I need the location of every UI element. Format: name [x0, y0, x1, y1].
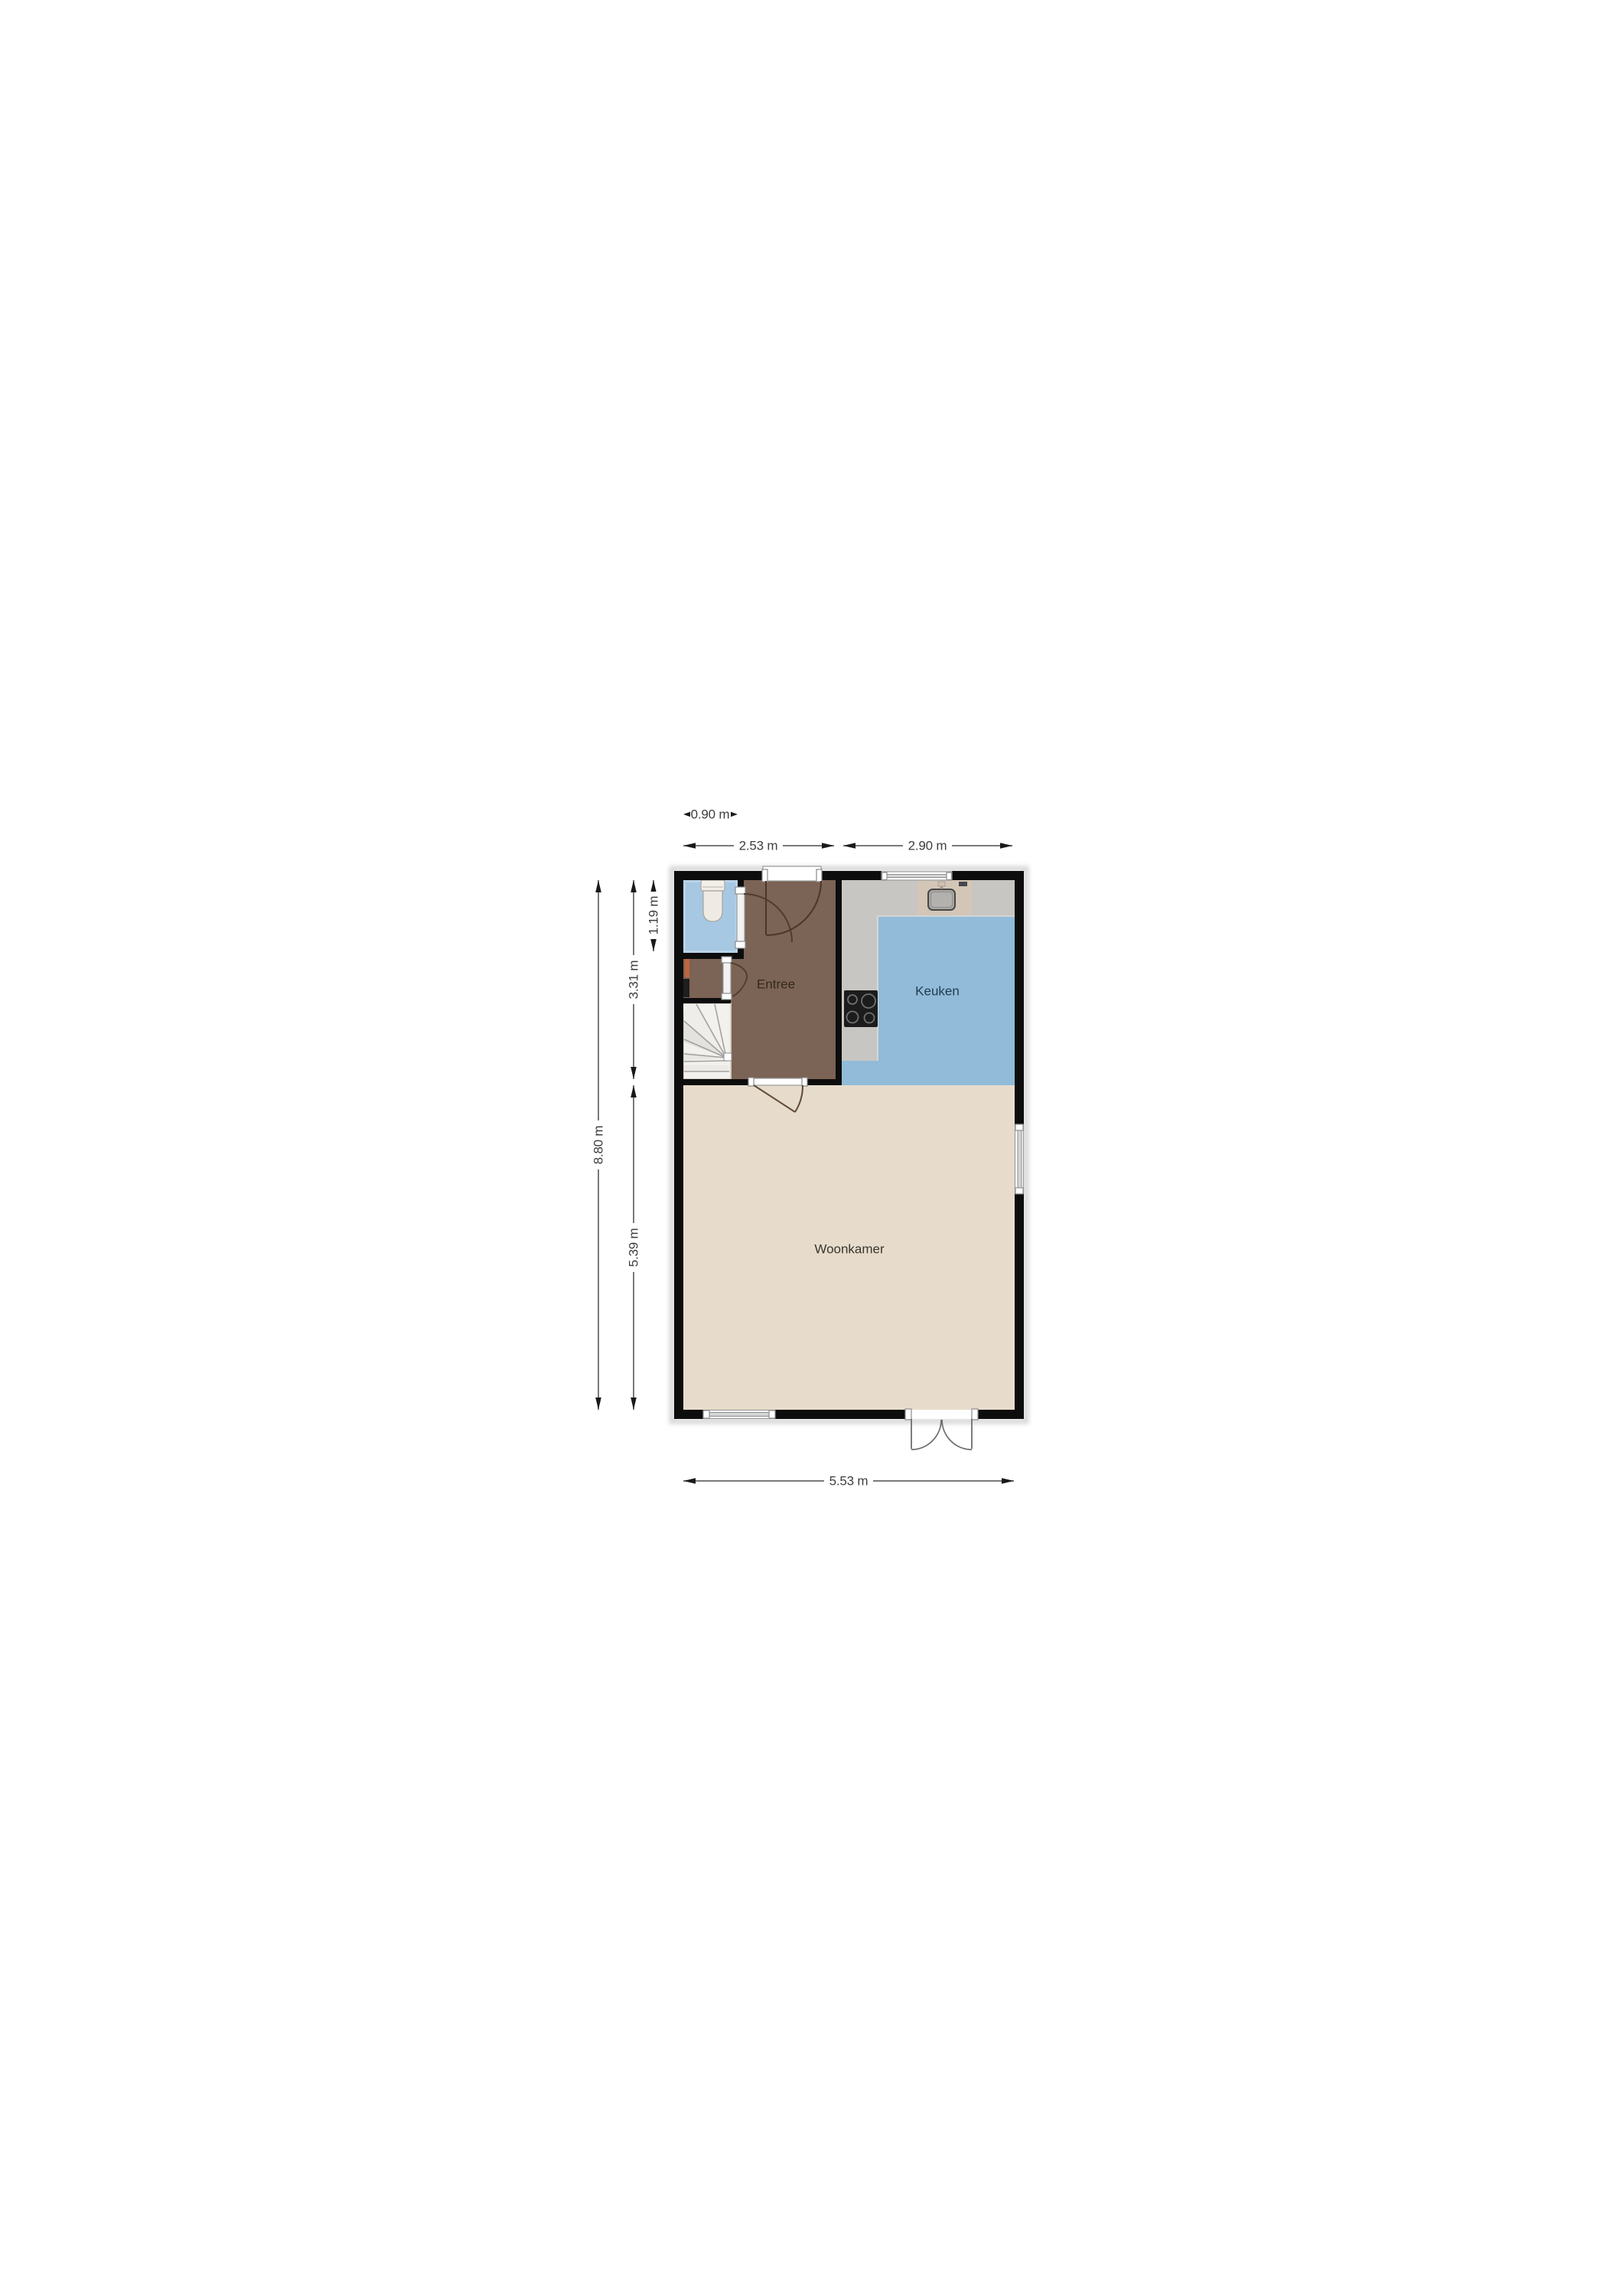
- svg-text:2.53 m: 2.53 m: [739, 839, 778, 853]
- svg-text:3.31 m: 3.31 m: [627, 960, 641, 1000]
- svg-text:1.19 m: 1.19 m: [647, 896, 661, 935]
- svg-text:8.80 m: 8.80 m: [592, 1126, 606, 1165]
- svg-text:Entree: Entree: [757, 977, 795, 992]
- svg-text:Woonkamer: Woonkamer: [814, 1242, 885, 1257]
- svg-text:Keuken: Keuken: [915, 984, 960, 999]
- svg-text:0.90 m: 0.90 m: [691, 807, 730, 822]
- svg-text:5.39 m: 5.39 m: [627, 1228, 641, 1267]
- svg-text:2.90 m: 2.90 m: [908, 839, 947, 853]
- svg-text:5.53 m: 5.53 m: [829, 1474, 869, 1489]
